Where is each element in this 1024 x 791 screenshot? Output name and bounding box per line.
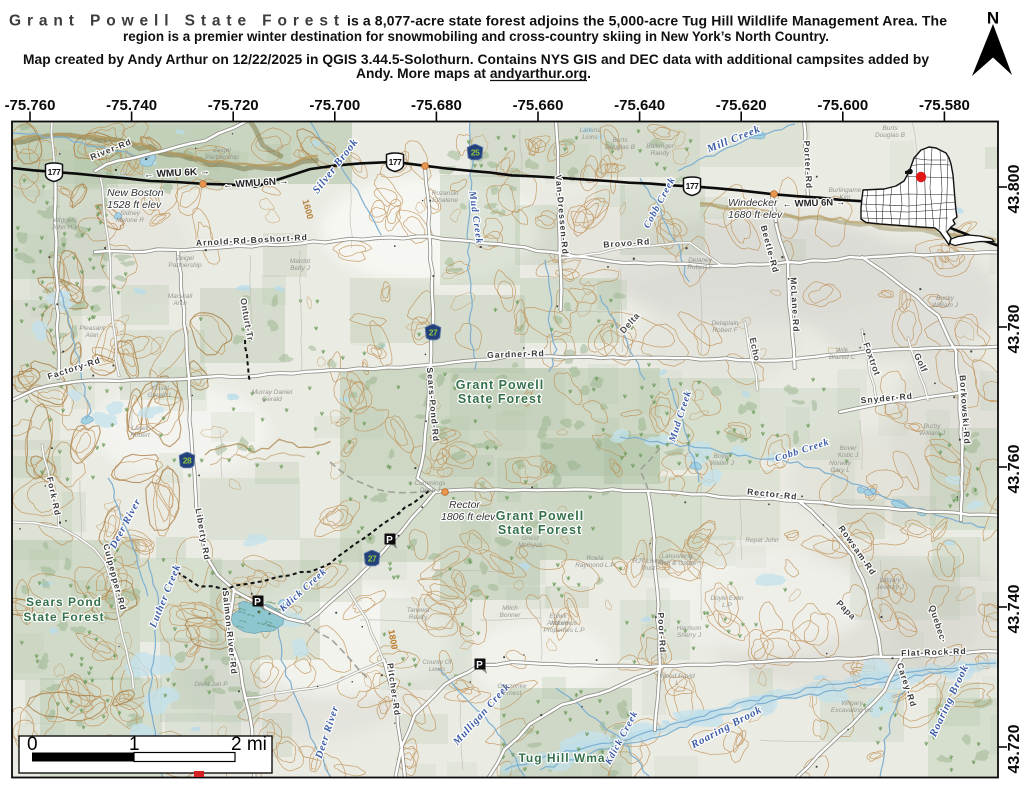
svg-text:1806 ft elev: 1806 ft elev bbox=[441, 511, 496, 523]
svg-text:Jeverby J: Jeverby J bbox=[875, 584, 905, 591]
svg-text:-75.580: -75.580 bbox=[919, 97, 970, 114]
svg-text:Cummings: Cummings bbox=[414, 480, 446, 487]
svg-text:Kim: Kim bbox=[839, 194, 851, 201]
svg-text:← WMU 6N →: ← WMU 6N → bbox=[782, 197, 845, 210]
svg-text:43.740: 43.740 bbox=[1006, 584, 1023, 633]
svg-text:Ballenger: Ballenger bbox=[646, 143, 674, 150]
svg-text:Wilgary: Wilgary bbox=[841, 700, 863, 707]
svg-text:-75.700: -75.700 bbox=[309, 97, 360, 114]
svg-text:Melone R: Melone R bbox=[116, 217, 144, 224]
svg-text:Gerald L: Gerald L bbox=[148, 392, 173, 399]
svg-text:Delaplain: Delaplain bbox=[711, 320, 738, 327]
svg-text:-75.740: -75.740 bbox=[106, 97, 157, 114]
svg-text:region is a premier winter des: region is a premier winter destination f… bbox=[123, 29, 829, 44]
svg-text:Blazed C: Blazed C bbox=[829, 354, 856, 361]
svg-text:Kistic J: Kistic J bbox=[838, 452, 859, 459]
svg-text:Robert F: Robert F bbox=[687, 264, 713, 271]
svg-text:-75.660: -75.660 bbox=[513, 97, 564, 114]
svg-text:Bonner: Bonner bbox=[500, 612, 522, 619]
svg-text:Gerald: Gerald bbox=[262, 396, 282, 403]
svg-text:Alan: Alan bbox=[84, 332, 98, 339]
svg-text:Burts: Burts bbox=[882, 125, 898, 132]
svg-text:43.780: 43.780 bbox=[1006, 304, 1023, 353]
svg-text:Bover: Bover bbox=[840, 445, 858, 452]
svg-text:Greist: Greist bbox=[521, 535, 540, 542]
svg-text:William J: William J bbox=[919, 430, 946, 437]
svg-text:Gary L: Gary L bbox=[830, 467, 850, 474]
svg-text:L: L bbox=[675, 680, 679, 687]
svg-text:Andy. More maps at andyarthur.: Andy. More maps at andyarthur.org. bbox=[356, 66, 591, 81]
svg-text:Delaney: Delaney bbox=[688, 257, 713, 264]
svg-text:-75.600: -75.600 bbox=[817, 97, 868, 114]
svg-text:Ethalene: Ethalene bbox=[432, 197, 458, 204]
svg-text:Wiggers: Wiggers bbox=[53, 217, 78, 224]
svg-text:Murray Daniel: Murray Daniel bbox=[252, 389, 293, 396]
svg-text:Betty J: Betty J bbox=[290, 265, 311, 272]
svg-text:27: 27 bbox=[429, 327, 438, 337]
svg-text:-75.680: -75.680 bbox=[411, 97, 462, 114]
svg-text:Randy: Randy bbox=[651, 150, 671, 157]
svg-text:Sears Pond: Sears Pond bbox=[26, 595, 102, 609]
svg-text:Harrison: Harrison bbox=[677, 625, 702, 632]
svg-text:Rector: Rector bbox=[449, 499, 480, 511]
svg-text:Mitch: Mitch bbox=[502, 605, 518, 612]
svg-text:-75.720: -75.720 bbox=[208, 97, 259, 114]
svg-text:Map created by Andy Arthur on: Map created by Andy Arthur on 12/22/2025… bbox=[23, 52, 929, 67]
svg-text:Robert: Robert bbox=[130, 432, 151, 439]
svg-text:Andrew: Andrew bbox=[546, 620, 570, 627]
svg-text:28: 28 bbox=[183, 455, 192, 465]
svg-text:Burlingame: Burlingame bbox=[829, 187, 862, 194]
svg-text:Sherry J: Sherry J bbox=[677, 632, 702, 639]
svg-text:Properties L.P: Properties L.P bbox=[543, 627, 585, 634]
svg-text:Gardner-Rd: Gardner-Rd bbox=[487, 348, 545, 360]
svg-text:25: 25 bbox=[471, 147, 480, 157]
svg-text:Eglwk: Eglwk bbox=[549, 613, 567, 620]
svg-text:Realty: Realty bbox=[409, 614, 428, 621]
svg-text:Partnership: Partnership bbox=[168, 262, 202, 269]
svg-text:P: P bbox=[386, 535, 393, 546]
svg-text:1: 1 bbox=[129, 734, 140, 755]
svg-text:McGyva: McGyva bbox=[518, 542, 542, 549]
svg-text:Lasell: Lasell bbox=[132, 425, 150, 432]
svg-text:Ernest: Ernest bbox=[503, 690, 523, 697]
svg-text:State Forest: State Forest bbox=[498, 523, 582, 537]
svg-text:County Of: County Of bbox=[422, 659, 452, 666]
svg-text:Repat John: Repat John bbox=[745, 537, 779, 544]
svg-text:Zeigel: Zeigel bbox=[175, 255, 194, 262]
svg-text:Lansolving: Lansolving bbox=[661, 553, 692, 560]
svg-text:Wilgary: Wilgary bbox=[879, 577, 901, 584]
svg-text:Douglas B: Douglas B bbox=[875, 132, 906, 139]
svg-text:State Forest: State Forest bbox=[458, 392, 542, 406]
svg-text:Sidney: Sidney bbox=[120, 210, 141, 217]
svg-text:43.720: 43.720 bbox=[1006, 724, 1023, 773]
svg-text:Zeigel: Zeigel bbox=[212, 147, 231, 154]
svg-text:P: P bbox=[254, 597, 261, 608]
svg-text:-75.640: -75.640 bbox=[614, 97, 665, 114]
svg-text:Roela: Roela bbox=[587, 555, 604, 562]
svg-text:43.800: 43.800 bbox=[1006, 164, 1023, 213]
svg-text:Doyle Evan: Doyle Evan bbox=[710, 595, 744, 602]
svg-text:Lewis: Lewis bbox=[429, 666, 446, 673]
svg-text:Burts: Burts bbox=[612, 137, 628, 144]
svg-text:177: 177 bbox=[686, 181, 699, 191]
svg-text:Grant Powell: Grant Powell bbox=[496, 509, 584, 523]
svg-text:2 mi: 2 mi bbox=[231, 734, 267, 755]
svg-text:Robert F: Robert F bbox=[712, 327, 738, 334]
svg-text:Boyer: Boyer bbox=[714, 453, 732, 460]
svg-text:Bucky: Bucky bbox=[936, 295, 954, 302]
svg-text:State Forest: State Forest bbox=[23, 610, 104, 624]
svg-text:0: 0 bbox=[27, 734, 38, 755]
svg-text:William J: William J bbox=[932, 302, 959, 309]
svg-text:Douglas B: Douglas B bbox=[605, 144, 636, 151]
svg-text:-75.760: -75.760 bbox=[5, 97, 56, 114]
svg-text:Raymond L.P: Raymond L.P bbox=[575, 562, 615, 569]
svg-text:New Boston: New Boston bbox=[107, 187, 164, 199]
svg-text:is a 8,077-acre state forest a: is a 8,077-acre state forest adjoins the… bbox=[347, 13, 947, 29]
svg-text:Kissel: Kissel bbox=[151, 385, 169, 392]
svg-text:Rozanski: Rozanski bbox=[432, 190, 459, 197]
svg-text:John H.V: John H.V bbox=[51, 224, 79, 231]
svg-text:Wilk: Wilk bbox=[836, 347, 849, 354]
svg-text:Arch: Arch bbox=[172, 300, 187, 307]
svg-text:Larkins: Larkins bbox=[580, 127, 602, 134]
svg-text:Tug Hill Wma: Tug Hill Wma bbox=[518, 751, 605, 765]
svg-text:Dean J: Dean J bbox=[420, 487, 441, 494]
svg-text:Grant Powell: Grant Powell bbox=[456, 378, 544, 392]
svg-text:43.760: 43.760 bbox=[1006, 444, 1023, 493]
svg-text:Pleasant: Pleasant bbox=[79, 325, 105, 332]
svg-text:177: 177 bbox=[389, 157, 402, 167]
svg-text:Trust: Trust bbox=[641, 565, 657, 572]
svg-text:L.P: L.P bbox=[722, 602, 732, 609]
svg-text:Fish & Game: Fish & Game bbox=[658, 560, 696, 567]
svg-text:Walter J: Walter J bbox=[710, 460, 734, 467]
svg-text:177: 177 bbox=[48, 167, 61, 177]
svg-text:Poor-Rd: Poor-Rd bbox=[656, 612, 668, 653]
svg-text:Tanewa: Tanewa bbox=[407, 607, 430, 614]
svg-text:Excavating Inc: Excavating Inc bbox=[831, 707, 874, 714]
svg-text:27: 27 bbox=[368, 553, 377, 563]
svg-text:Diehl Jan P: Diehl Jan P bbox=[194, 681, 228, 688]
svg-text:Gaczonke: Gaczonke bbox=[497, 683, 527, 690]
svg-text:Lions: Lions bbox=[582, 134, 598, 141]
svg-text:Marshall: Marshall bbox=[168, 293, 193, 300]
svg-text:Norway: Norway bbox=[829, 460, 852, 467]
svg-text:-75.620: -75.620 bbox=[716, 97, 767, 114]
svg-text:Windecker: Windecker bbox=[728, 197, 778, 209]
svg-text:Partnership: Partnership bbox=[205, 154, 239, 161]
svg-text:1680 ft elev: 1680 ft elev bbox=[728, 209, 783, 221]
svg-text:P: P bbox=[476, 660, 483, 671]
svg-text:Marriot: Marriot bbox=[290, 258, 311, 265]
svg-text:Wood David: Wood David bbox=[659, 673, 695, 680]
svg-text:Burby: Burby bbox=[924, 423, 942, 430]
